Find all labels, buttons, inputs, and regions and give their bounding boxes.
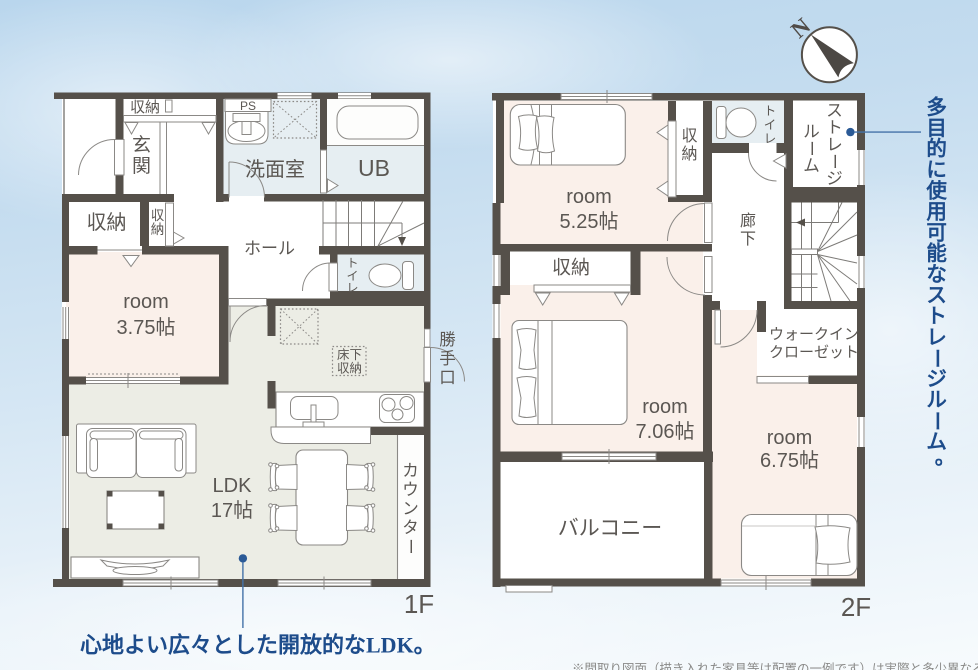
svg-text:イ: イ [764, 118, 777, 132]
svg-text:玄: 玄 [132, 134, 151, 156]
svg-text:収納: 収納 [337, 362, 362, 376]
svg-text:床下: 床下 [337, 348, 362, 362]
svg-text:関: 関 [132, 156, 151, 177]
svg-text:ー: ー [802, 140, 820, 157]
svg-text:ウォークイン: ウォークイン [769, 326, 859, 343]
svg-text:※間取り図面（描き入れた家具等は配置の一例です）は実際と多少: ※間取り図面（描き入れた家具等は配置の一例です）は実際と多少異なる場合があります… [572, 661, 978, 670]
svg-text:UB: UB [358, 155, 390, 181]
svg-text:カ: カ [402, 462, 419, 480]
svg-text:洗面室: 洗面室 [245, 158, 305, 181]
svg-text:バルコニー: バルコニー [558, 517, 663, 540]
svg-text:ー: ー [825, 153, 843, 170]
svg-text:17帖: 17帖 [211, 499, 253, 522]
svg-text:ン: ン [402, 500, 419, 518]
svg-text:ウ: ウ [402, 480, 419, 499]
svg-text:用: 用 [926, 201, 947, 223]
svg-text:納: 納 [681, 145, 697, 163]
svg-text:3.75帖: 3.75帖 [117, 316, 176, 339]
svg-text:使: 使 [925, 179, 947, 203]
svg-text:ジ: ジ [926, 369, 947, 391]
svg-text:勝: 勝 [439, 330, 456, 349]
svg-text:収: 収 [151, 208, 165, 223]
svg-text:目: 目 [926, 118, 947, 140]
svg-text:収納: 収納 [87, 211, 127, 234]
svg-text:PS: PS [240, 99, 256, 113]
svg-text:レ: レ [926, 327, 947, 349]
svg-text:レ: レ [764, 132, 777, 146]
svg-text:6.75帖: 6.75帖 [760, 449, 819, 472]
svg-text:ト: ト [346, 256, 358, 270]
svg-text:room: room [767, 427, 813, 449]
svg-text:2F: 2F [841, 592, 871, 622]
svg-text:手: 手 [439, 349, 456, 368]
svg-text:クローゼット: クローゼット [769, 344, 859, 361]
svg-text:。: 。 [935, 447, 956, 469]
svg-text:5.25帖: 5.25帖 [560, 210, 619, 233]
svg-text:ル: ル [803, 123, 820, 141]
svg-text:収納: 収納 [552, 257, 590, 279]
svg-text:ル: ル [926, 390, 947, 412]
svg-text:心地よい広々とした開放的なLDK。: 心地よい広々とした開放的なLDK。 [80, 633, 436, 658]
svg-text:レ: レ [826, 136, 843, 154]
svg-text:収納: 収納 [130, 99, 160, 116]
svg-text:LDK: LDK [213, 475, 253, 497]
svg-text:7.06帖: 7.06帖 [636, 420, 695, 443]
svg-text:ー: ー [401, 538, 419, 555]
svg-text:ス: ス [826, 102, 843, 120]
svg-text:レ: レ [346, 281, 358, 295]
svg-text:に: に [926, 160, 947, 182]
svg-text:可: 可 [926, 222, 947, 244]
svg-text:収: 収 [681, 127, 697, 145]
svg-text:的: 的 [926, 137, 947, 161]
svg-text:ム: ム [803, 157, 820, 175]
svg-text:下: 下 [740, 231, 756, 248]
svg-text:廊: 廊 [740, 212, 756, 230]
svg-text:ス: ス [926, 285, 947, 307]
svg-text:タ: タ [402, 518, 419, 537]
svg-text:能: 能 [926, 241, 947, 265]
svg-text:ジ: ジ [826, 170, 843, 188]
svg-text:ト: ト [764, 104, 777, 118]
svg-text:room: room [642, 396, 688, 418]
svg-text:口: 口 [439, 369, 456, 387]
svg-text:ー: ー [925, 348, 947, 369]
svg-text:ト: ト [826, 119, 843, 137]
svg-text:room: room [566, 186, 612, 208]
svg-text:な: な [926, 263, 947, 286]
svg-text:納: 納 [151, 222, 165, 237]
svg-text:ホール: ホール [244, 239, 295, 258]
svg-text:ー: ー [925, 411, 947, 432]
svg-text:1F: 1F [404, 589, 434, 619]
svg-text:ト: ト [926, 306, 947, 328]
svg-text:多: 多 [926, 95, 947, 119]
svg-text:room: room [123, 291, 169, 313]
